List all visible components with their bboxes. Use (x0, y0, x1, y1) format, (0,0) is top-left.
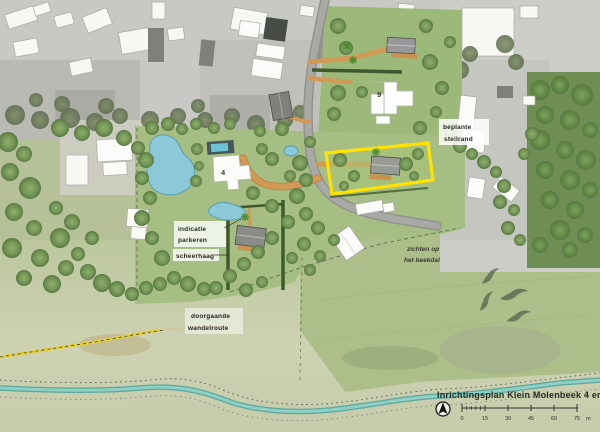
house-number-9: 9 (377, 90, 381, 99)
forest-right (527, 72, 600, 268)
route-label-line1: doorgaande (191, 313, 230, 320)
building-barn-west (269, 91, 293, 120)
site-plan-svg: indicatie parkeren scheerhaag doorgaande… (0, 0, 600, 432)
scale-tick-15: 15 (482, 416, 488, 422)
escarpment-label-line2: steilrand (444, 136, 473, 143)
scale-tick-30: 30 (505, 416, 511, 422)
escarpment-label-line1: beplante (443, 124, 472, 131)
scale-tick-75: 75 (574, 416, 580, 422)
scale-unit: m (586, 416, 591, 422)
parking-label-line2: parkeren (178, 237, 207, 244)
scale-tick-45: 45 (528, 416, 534, 422)
label-doorgaande-wandelroute: doorgaande wandelroute (185, 308, 243, 334)
site-plan-map: indicatie parkeren scheerhaag doorgaande… (0, 0, 600, 432)
scale-tick-60: 60 (551, 416, 557, 422)
view-label-line2: het beekdal (404, 257, 440, 264)
view-label-line1: zichten op (406, 246, 439, 253)
hedge-label: scheerhaag (176, 253, 214, 260)
parking-label-line1: indicatie (178, 226, 206, 233)
plan-title: Inrichtingsplan Klein Molenbeek 4 en 9 (437, 390, 600, 400)
scale-tick-0: 0 (460, 416, 463, 422)
north-arrow-icon (436, 402, 450, 416)
label-beplante-steilrand: beplante steilrand (439, 119, 489, 145)
route-label-line2: wandelroute (187, 325, 229, 332)
